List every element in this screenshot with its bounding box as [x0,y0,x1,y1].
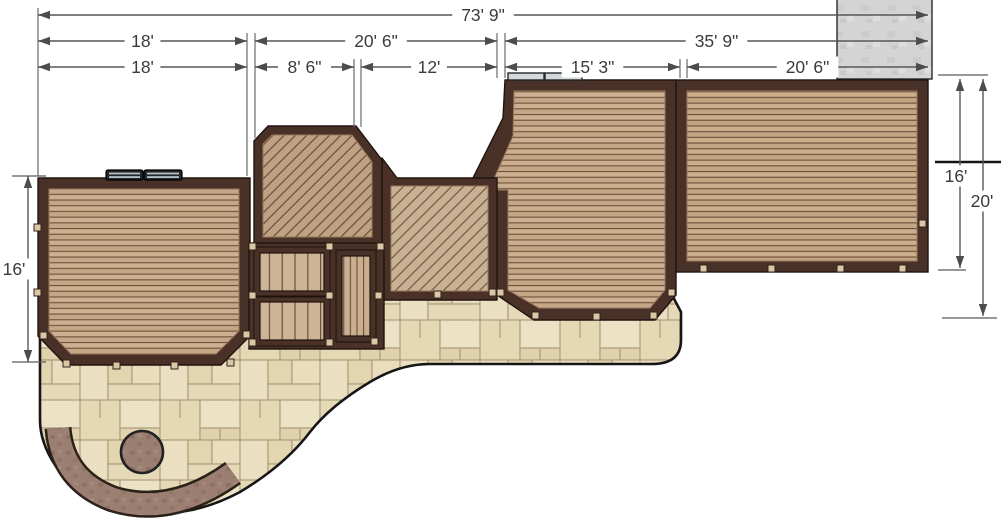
dim-arrow [668,63,680,71]
railing-post [532,312,539,319]
dim-arrow [38,11,50,19]
dim-arrow [38,37,50,45]
dim-arrow [485,63,497,71]
railing-post [171,362,178,369]
dim-label: 15' 3" [571,57,615,77]
railing-post [243,331,250,338]
dim-label: 12' [418,57,441,77]
deck-section-12ft [382,158,497,300]
railing-post [375,292,382,299]
dim-label: 16' [3,259,26,279]
dim-label: 16' [945,166,968,186]
dim-label: 18' [131,57,154,77]
dim-label: 35' 9" [695,31,739,51]
dim-label: 18' [131,31,154,51]
railing-post [371,338,378,345]
dim-label: 73' 9" [461,5,505,25]
dim-arrow [235,63,247,71]
railing-post [326,339,333,346]
railing-post [326,292,333,299]
dim-arrow [687,63,699,71]
railing-post [227,359,234,366]
deck-plan-svg: 73' 9"18'20' 6"35' 9"18'8' 6"12'15' 3"20… [0,0,1001,527]
dim-label: 20' 6" [786,57,830,77]
railing-post [593,313,600,320]
dim-arrow [979,304,987,316]
railing-post [497,289,504,296]
dim-arrow [505,37,517,45]
railing-post [34,224,41,231]
dim-label: 20' 6" [354,31,398,51]
dim-label: 8' 6" [288,57,322,77]
railing-post [113,362,120,369]
dim-arrow [255,63,267,71]
railing-post [700,265,707,272]
narrow-stair [342,256,370,336]
railing-post [249,339,256,346]
stairs-group [249,243,384,349]
railing-post [434,291,441,298]
deck-section-middle [254,126,382,246]
railing-post [326,243,333,250]
dim-arrow [979,79,987,91]
dim-arrow [505,63,517,71]
railing-post [768,265,775,272]
railing-post [919,220,926,227]
door-threshold-left-deck [106,170,182,180]
dim-arrow [24,176,32,188]
railing-post [249,292,256,299]
railing-post [249,243,256,250]
railing-post [34,289,41,296]
wide-stair-lower [260,302,324,340]
dim-arrow [235,37,247,45]
deck-section-left [38,178,250,365]
deck-section-right [676,80,928,272]
railing-post [668,289,675,296]
dim-arrow [24,350,32,362]
dim-arrow [485,37,497,45]
dim-arrow [956,256,964,268]
railing-post [650,312,657,319]
railing-post [63,360,70,367]
railing-post [837,265,844,272]
deck-section-15ft3 [471,80,676,320]
dim-arrow [255,37,267,45]
dim-label: 20' [971,191,994,211]
dim-arrow [342,63,354,71]
railing-post [377,243,384,250]
railing-post [489,289,496,296]
dim-arrow [956,79,964,91]
railing-post [40,332,47,339]
dim-arrow [38,63,50,71]
dim-arrow [361,63,373,71]
fire-pit [121,431,163,473]
railing-post [899,265,906,272]
wide-stair-upper [260,253,324,291]
deck-plan-canvas: 73' 9"18'20' 6"35' 9"18'8' 6"12'15' 3"20… [0,0,1001,527]
